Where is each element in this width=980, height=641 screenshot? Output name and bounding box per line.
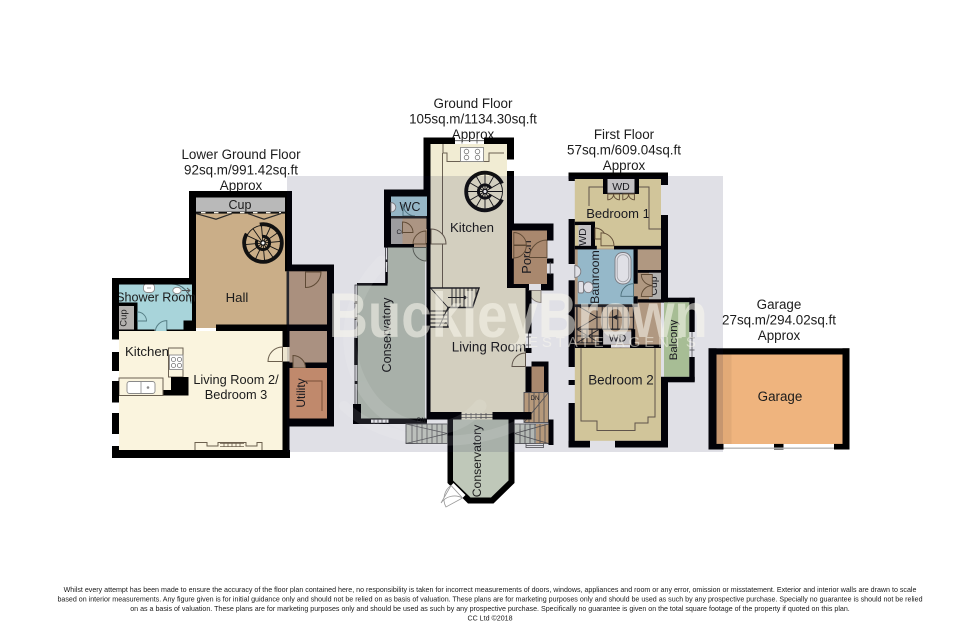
svg-text:Approx: Approx — [603, 158, 646, 173]
svg-text:Cup: Cup — [229, 198, 252, 212]
svg-text:CC Ltd ©2018: CC Ltd ©2018 — [467, 615, 512, 623]
svg-text:Kitchen: Kitchen — [125, 344, 169, 359]
svg-text:27sq.m/294.02sq.ft: 27sq.m/294.02sq.ft — [722, 313, 836, 328]
svg-text:First Floor: First Floor — [594, 127, 655, 142]
svg-text:Lower Ground Floor: Lower Ground Floor — [181, 147, 301, 162]
svg-text:Hall: Hall — [226, 290, 249, 305]
svg-text:based on interior measurements: based on interior measurements. Any figu… — [57, 596, 922, 604]
svg-text:105sq.m/1134.30sq.ft: 105sq.m/1134.30sq.ft — [409, 112, 537, 127]
svg-text:Garage: Garage — [758, 389, 803, 404]
svg-text:Living Room 2/: Living Room 2/ — [193, 372, 279, 387]
svg-text:Approx: Approx — [220, 178, 263, 193]
svg-text:Ground Floor: Ground Floor — [434, 96, 513, 111]
svg-text:Approx: Approx — [758, 328, 801, 343]
svg-text:57sq.m/609.04sq.ft: 57sq.m/609.04sq.ft — [567, 143, 681, 158]
svg-text:92sq.m/991.42sq.ft: 92sq.m/991.42sq.ft — [184, 163, 298, 178]
svg-text:Shower Room: Shower Room — [116, 291, 196, 305]
svg-text:Whilst every attempt has been: Whilst every attempt has been made to en… — [64, 586, 917, 594]
svg-text:Bedroom 3: Bedroom 3 — [205, 387, 268, 402]
svg-text:Garage: Garage — [757, 297, 802, 312]
svg-text:on as a basis of valuation. Th: on as a basis of valuation. These plans … — [130, 605, 850, 613]
svg-text:Cup: Cup — [119, 309, 130, 326]
svg-text:ESTATE AGENTS: ESTATE AGENTS — [528, 334, 700, 351]
